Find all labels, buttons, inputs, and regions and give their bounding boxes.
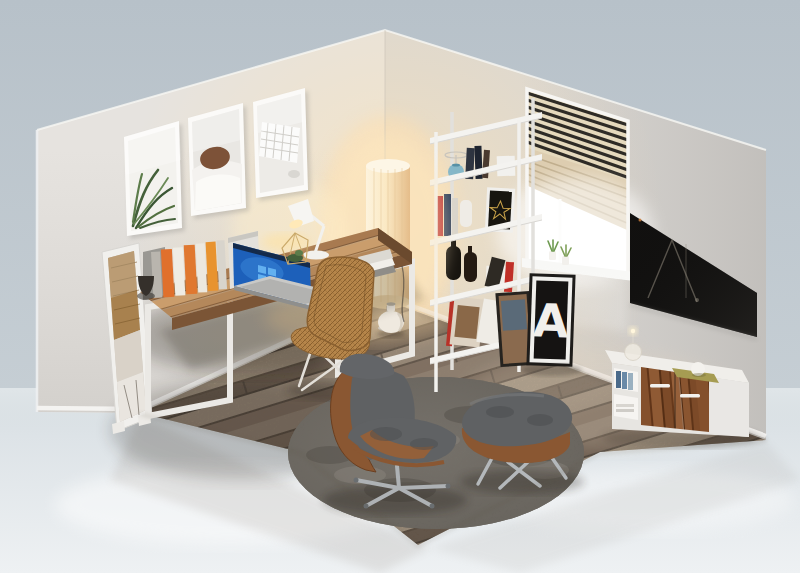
wall-frame-keyboard	[253, 88, 311, 201]
eames-ottoman	[460, 392, 584, 494]
drawer-handle	[680, 394, 700, 398]
poster-letter: A	[532, 293, 570, 348]
poster-a: A	[526, 273, 575, 367]
white-vase	[460, 200, 472, 227]
room-render: A	[0, 0, 800, 573]
wall-frame-plant	[124, 121, 185, 239]
drawer-handle	[650, 384, 670, 388]
wall-frame-bedroom	[188, 103, 249, 219]
